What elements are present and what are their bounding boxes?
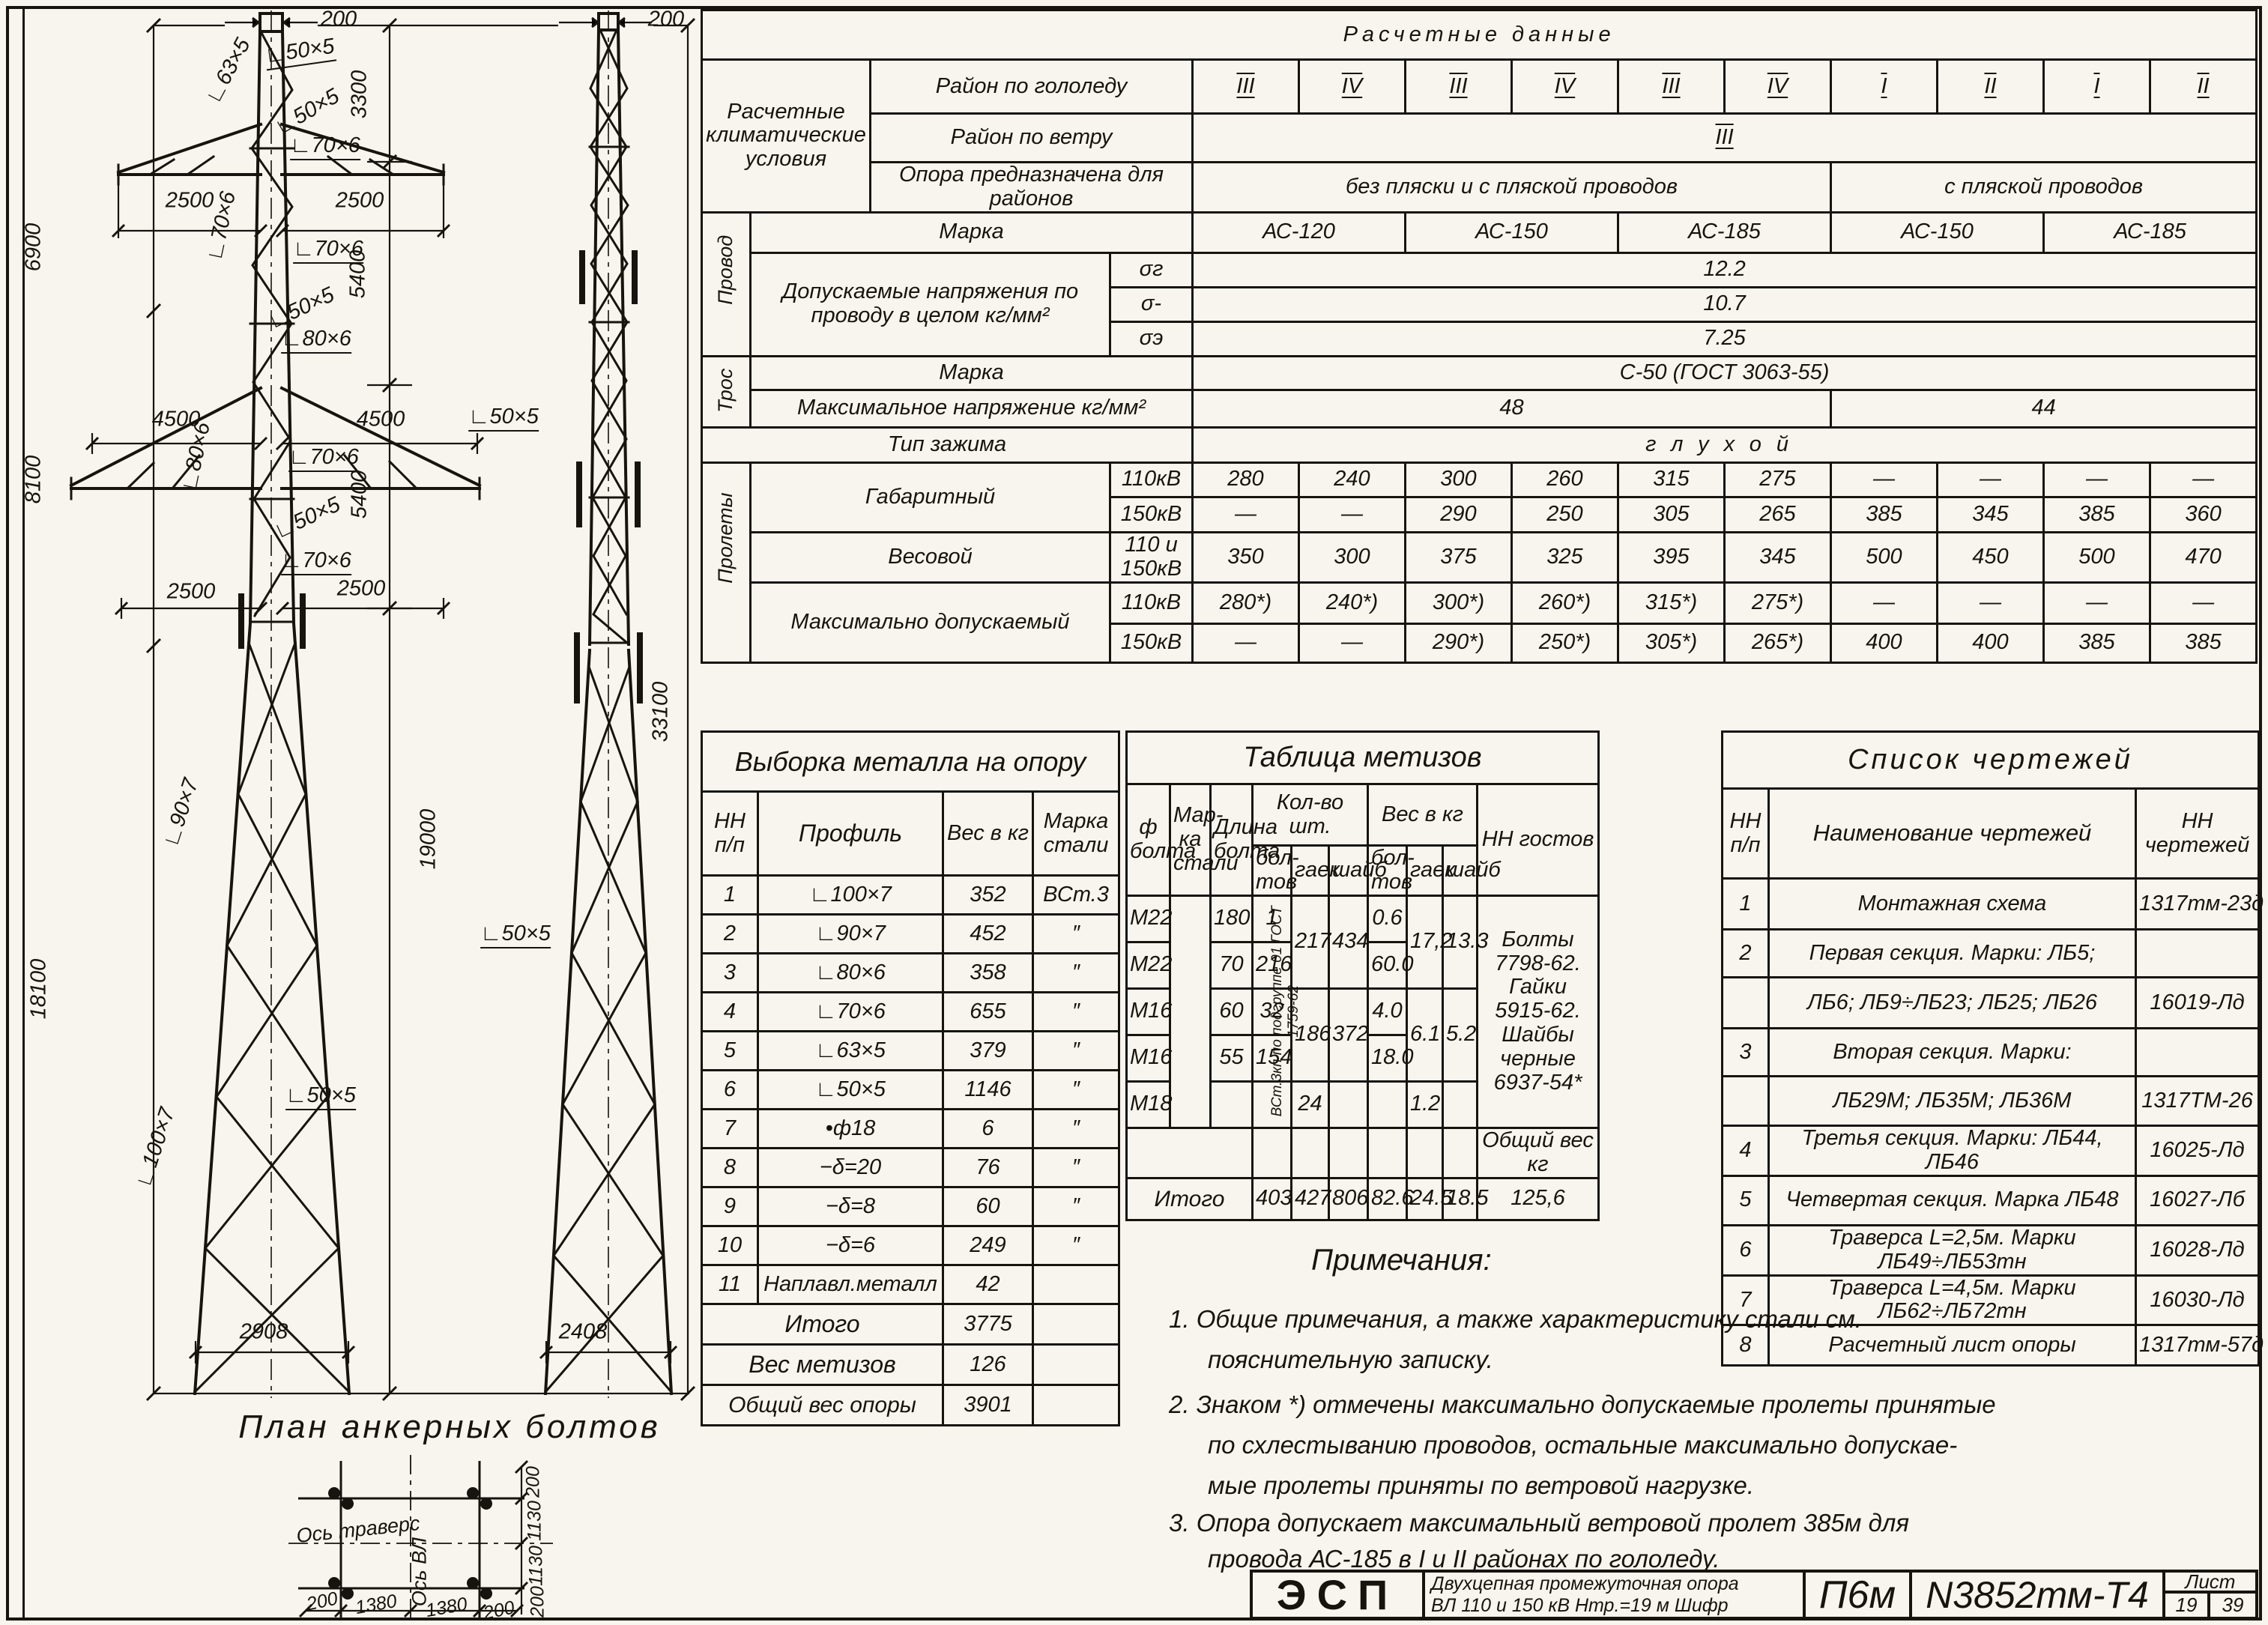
span-value: 300: [1406, 462, 1512, 497]
span-value: 375: [1406, 532, 1512, 582]
row-num: 1: [1723, 879, 1769, 930]
bolt-dia: М16: [1127, 1035, 1170, 1081]
qty-washers: 434: [1329, 895, 1368, 988]
empty-cell: [1407, 1128, 1443, 1178]
dim-arm3-left: 2500: [167, 580, 216, 605]
span-value: 300*): [1406, 582, 1512, 623]
span-value: 360: [2150, 497, 2257, 532]
row-num: 1: [702, 876, 758, 915]
empty-cell: [1329, 1128, 1368, 1178]
tower-description-line1: Двухцепная промежуточная опора: [1431, 1573, 1739, 1595]
note-line: 1. Общие примечания, а также характерист…: [1169, 1305, 1862, 1334]
span-value: 395: [1618, 532, 1725, 582]
row-num: 9: [702, 1187, 758, 1226]
gabarit-label: Габаритный: [751, 462, 1110, 532]
ice-region-value: II: [2150, 60, 2257, 114]
col-header: НН п/п: [1723, 789, 1769, 879]
sigma-label: σг: [1110, 252, 1193, 287]
steel: ВСт.3: [1033, 876, 1119, 915]
wire-marka-label: Марка: [751, 212, 1193, 252]
metal-title: Выборка металла на опору: [702, 732, 1119, 792]
col-header: Наименование чертежей: [1769, 789, 2136, 879]
wt-bolts: 18.0: [1368, 1035, 1407, 1081]
bolt-len: [1211, 1081, 1253, 1128]
steel-note: ВСт.3кп по подгруппе 01 ГОСТ 1759-62: [1170, 895, 1211, 1128]
sub-header: бол-тов: [1253, 846, 1292, 896]
col-header: Профиль: [758, 792, 943, 876]
sigma-value: 7.25: [1193, 321, 2257, 356]
sheet-margin-line: [22, 6, 25, 1621]
spans-section-label: Пролеты: [702, 462, 751, 662]
wt-bolts: 60.0: [1368, 942, 1407, 988]
total-label: Итого: [1127, 1178, 1253, 1220]
row-num: 5: [1723, 1175, 1769, 1225]
weight: 452: [943, 915, 1033, 954]
sub-header: шайб: [1443, 846, 1478, 896]
span-value: —: [1193, 497, 1299, 532]
weight: 1146: [943, 1071, 1033, 1110]
sheet-number: 19: [2162, 1591, 2210, 1620]
purpose-value-b: с пляской проводов: [1831, 163, 2257, 213]
steel: ″: [1033, 1032, 1119, 1071]
sigma-value: 12.2: [1193, 252, 2257, 287]
dim-h2: 8100: [22, 456, 46, 504]
empty-cell: [1292, 1128, 1329, 1178]
empty-cell: [1253, 1128, 1292, 1178]
span-value: 305*): [1618, 623, 1725, 662]
ice-region-value: II: [1938, 60, 2044, 114]
drawing-name: Четвертая секция. Марка ЛБ48: [1769, 1175, 2136, 1225]
wire-marka-value: АС-185: [2044, 212, 2257, 252]
member-label: ∟50×5: [480, 922, 551, 948]
steel: ″: [1033, 1110, 1119, 1149]
weight: 379: [943, 1032, 1033, 1071]
axis-vl-label: Ось ВЛ: [408, 1537, 432, 1606]
span-value: 345: [1938, 497, 2044, 532]
span-value: 385: [2044, 623, 2150, 662]
tension-value-a: 48: [1193, 390, 1831, 427]
col-header: НН чертежей: [2136, 789, 2259, 879]
span-value: 315*): [1618, 582, 1725, 623]
wt-bolts: 0.6: [1368, 895, 1407, 942]
anchor-plan-title: План анкерных болтов: [238, 1408, 660, 1446]
profile: Наплавл.металл: [758, 1265, 943, 1304]
kv-label: 110кВ: [1110, 462, 1193, 497]
ice-region-value: IV: [1725, 60, 1831, 114]
bolt-len: 70: [1211, 942, 1253, 988]
wire-marka-value: АС-120: [1193, 212, 1406, 252]
profile: −δ=8: [758, 1187, 943, 1226]
steel: ″: [1033, 915, 1119, 954]
span-value: 260*): [1512, 582, 1618, 623]
kv-label: 110кВ: [1110, 582, 1193, 623]
span-value: 500: [1831, 532, 1938, 582]
hardware-table: Таблица метизов ф болта Мар-ка стали Дли…: [1125, 730, 1600, 1221]
span-value: —: [2150, 582, 2257, 623]
bolt-len: 180: [1211, 895, 1253, 942]
plan-dim: 200: [527, 1586, 549, 1618]
title-block-description: Двухцепная промежуточная опора ВЛ 110 и …: [1422, 1570, 1806, 1620]
span-value: 500: [2044, 532, 2150, 582]
dim-v1: 3300: [348, 70, 372, 119]
bolt-len: 60: [1211, 988, 1253, 1035]
note-line: мые пролеты приняты по ветровой нагрузке…: [1208, 1471, 1754, 1500]
wind-region-value: III: [1193, 114, 2257, 163]
ice-region-value: I: [2044, 60, 2150, 114]
plan-dim: 200: [523, 1466, 545, 1498]
wt-washers: 13.3: [1443, 895, 1478, 988]
span-value: —: [1831, 582, 1938, 623]
tension-value-b: 44: [1831, 390, 2257, 427]
profile: ∟90×7: [758, 915, 943, 954]
weight: 249: [943, 1226, 1033, 1265]
kv-label: 150кВ: [1110, 497, 1193, 532]
row-num: 2: [702, 915, 758, 954]
col-header: НН п/п: [702, 792, 758, 876]
steel: ″: [1033, 1071, 1119, 1110]
span-value: 450: [1938, 532, 2044, 582]
row-num: [1723, 978, 1769, 1029]
drawing-num: [2136, 930, 2259, 978]
weight: 655: [943, 993, 1033, 1032]
row-num: 6: [702, 1071, 758, 1110]
drawing-num: 16028-Лд: [2136, 1225, 2259, 1275]
max-span-label: Максимально допускаемый: [751, 582, 1110, 662]
drawing-name: Монтажная схема: [1769, 879, 2136, 930]
span-value: 315: [1618, 462, 1725, 497]
ice-region-value: III: [1406, 60, 1512, 114]
span-value: —: [2044, 582, 2150, 623]
drawing-num: 16027-Лб: [2136, 1175, 2259, 1225]
row-num: 11: [702, 1265, 758, 1304]
kv-label: 110 и 150кВ: [1110, 532, 1193, 582]
empty-cell: [1033, 1385, 1119, 1426]
wind-region-label: Район по ветру: [871, 114, 1193, 163]
drawing-num: 1317ТМ-26: [2136, 1077, 2259, 1126]
hardware-title: Таблица метизов: [1127, 732, 1599, 784]
plan-dim: 1130: [524, 1501, 546, 1541]
drawing-num: 1317тм-23д: [2136, 879, 2259, 930]
span-value: 250*): [1512, 623, 1618, 662]
cable-marka-value: С-50 (ГОСТ 3063-55): [1193, 356, 2257, 390]
wire-marka-value: АС-150: [1831, 212, 2044, 252]
empty-cell: [1033, 1345, 1119, 1385]
stress-label: Допускаемые напряжения по проводу в цело…: [751, 252, 1110, 356]
note-line: по схлестыванию проводов, остальные макс…: [1208, 1431, 1957, 1459]
weight: 352: [943, 876, 1033, 915]
span-value: —: [1193, 623, 1299, 662]
col-header: ф болта: [1127, 784, 1170, 896]
col-header: Вес в кг: [943, 792, 1033, 876]
member-label: ∟80×6: [281, 327, 351, 354]
span-value: —: [1938, 462, 2044, 497]
wire-section-label: Провод: [702, 212, 751, 356]
drawing-name: ЛБ6; ЛБ9÷ЛБ23; ЛБ25; ЛБ26: [1769, 978, 2136, 1029]
sub-header: бол-тов: [1368, 846, 1407, 896]
profile: ∟63×5: [758, 1032, 943, 1071]
sub-header: шайб: [1329, 846, 1368, 896]
span-value: 240*): [1299, 582, 1406, 623]
span-value: —: [1299, 497, 1406, 532]
span-value: 385: [2150, 623, 2257, 662]
notes-title: Примечания:: [1311, 1244, 1492, 1277]
row-num: 3: [1723, 1029, 1769, 1077]
dim-v3: 5400: [348, 470, 372, 519]
dim-base-side: 2408: [559, 1320, 608, 1345]
dim-base-front: 2908: [240, 1320, 288, 1345]
col-header: Длина болта: [1211, 784, 1253, 896]
calc-data-table: Расчетные данные Расчетные климатические…: [701, 9, 2258, 664]
drawing-num: 16030-Лд: [2136, 1275, 2259, 1325]
ice-region-value: IV: [1512, 60, 1618, 114]
row-num: 2: [1723, 930, 1769, 978]
wt-washers: [1443, 1081, 1478, 1128]
steel: ″: [1033, 993, 1119, 1032]
profile: ∟80×6: [758, 954, 943, 993]
cable-marka-label: Марка: [751, 356, 1193, 390]
total-wt-nuts: 24.5: [1407, 1178, 1443, 1220]
span-value: —: [1299, 623, 1406, 662]
wire-marka-value: АС-185: [1618, 212, 1831, 252]
member-label: ∟50×5: [468, 405, 539, 432]
span-value: 345: [1725, 532, 1831, 582]
drawing-num: 16019-Лд: [2136, 978, 2259, 1029]
span-value: 275: [1725, 462, 1831, 497]
tower-description-line2: ВЛ 110 и 150 кВ Нтр.=19 м Шифр: [1431, 1595, 1729, 1617]
note-line: 3. Опора допускает максимальный ветровой…: [1169, 1509, 1909, 1537]
dim-arm2-right: 4500: [357, 408, 405, 432]
span-value: 260: [1512, 462, 1618, 497]
total-value: 3775: [943, 1304, 1033, 1345]
weight: 42: [943, 1265, 1033, 1304]
drawing-sheet: 200 200 6900 8100 18100 3300 5400 5400 1…: [0, 0, 2268, 1625]
span-value: 385: [2044, 497, 2150, 532]
span-value: —: [1831, 462, 1938, 497]
list-title: Список чертежей: [1723, 732, 2259, 789]
hardware-weight-value: 126: [943, 1345, 1033, 1385]
sigma-label: σ-: [1110, 287, 1193, 321]
wt-bolts: [1368, 1081, 1407, 1128]
sigma-value: 10.7: [1193, 287, 2257, 321]
wt-nuts: 1.2: [1407, 1081, 1443, 1128]
total-wt-bolts: 82.6: [1368, 1178, 1407, 1220]
span-value: 350: [1193, 532, 1299, 582]
drawing-name: Третья секция. Марки: ЛБ44, ЛБ46: [1769, 1126, 2136, 1176]
member-label: ∟70×6: [281, 548, 351, 575]
total-weight-header: Общий вес кг: [1478, 1128, 1599, 1178]
wt-washers: 5.2: [1443, 988, 1478, 1081]
empty-cell: [1368, 1128, 1407, 1178]
steel: ″: [1033, 1149, 1119, 1187]
steel: ″: [1033, 1226, 1119, 1265]
span-value: 265: [1725, 497, 1831, 532]
org-stamp: ЭСП: [1250, 1570, 1425, 1620]
note-line: 2. Знаком *) отмечены максимально допуск…: [1169, 1391, 1996, 1419]
tower-type-code: П6м: [1803, 1570, 1912, 1620]
clamp-value: глухой: [1193, 427, 2257, 462]
wt-bolts: 4.0: [1368, 988, 1407, 1035]
steel: [1033, 1265, 1119, 1304]
qty-washers: 372: [1329, 988, 1368, 1081]
member-label: ∟70×6: [290, 133, 360, 160]
row-num: 10: [702, 1226, 758, 1265]
span-value: —: [2150, 462, 2257, 497]
row-num: 6: [1723, 1225, 1769, 1275]
span-value: 280: [1193, 462, 1299, 497]
drawing-name: Первая секция. Марки: ЛБ5;: [1769, 930, 2136, 978]
profile: ∟70×6: [758, 993, 943, 1032]
member-label: ∟70×6: [288, 445, 359, 472]
note-line: пояснительную записку.: [1208, 1346, 1493, 1374]
purpose-value-a: без пляски и с пляской проводов: [1193, 163, 1831, 213]
dim-arm1-left: 2500: [166, 189, 214, 214]
bolt-dia: М22: [1127, 895, 1170, 942]
metal-table: Выборка металла на опору НН п/п Профиль …: [701, 730, 1120, 1426]
span-value: 400: [1938, 623, 2044, 662]
weight: 60: [943, 1187, 1033, 1226]
drawing-num: 1317тм-57д: [2136, 1325, 2259, 1366]
profile: ∟100×7: [758, 876, 943, 915]
member-label: ∟50×5: [285, 1083, 356, 1110]
profile: •ф18: [758, 1110, 943, 1149]
empty-cell: [1443, 1128, 1478, 1178]
calc-title: Расчетные данные: [702, 10, 2257, 60]
empty-cell: [1033, 1304, 1119, 1345]
span-value: 400: [1831, 623, 1938, 662]
steel: ″: [1033, 1187, 1119, 1226]
weight: 6: [943, 1110, 1033, 1149]
purpose-label: Опора предназначена для районов: [871, 163, 1193, 213]
total-qty-bolts: 403: [1253, 1178, 1292, 1220]
grand-weight-label: Общий вес опоры: [702, 1385, 943, 1426]
hardware-weight-label: Вес метизов: [702, 1345, 943, 1385]
dim-front-top-width: 200: [321, 7, 357, 32]
row-num: 4: [702, 993, 758, 1032]
col-header: Вес в кг: [1368, 784, 1478, 846]
total-label: Итого: [702, 1304, 943, 1345]
weight: 76: [943, 1149, 1033, 1187]
row-num: 5: [702, 1032, 758, 1071]
drawing-name: ЛБ29М; ЛБ35М; ЛБ36М: [1769, 1077, 2136, 1126]
ice-region-value: III: [1193, 60, 1299, 114]
col-header: Марка стали: [1033, 792, 1119, 876]
span-value: 240: [1299, 462, 1406, 497]
profile: −δ=20: [758, 1149, 943, 1187]
dim-vtotal: 33100: [649, 682, 674, 742]
span-value: 265*): [1725, 623, 1831, 662]
dim-side-top-width: 200: [648, 7, 684, 32]
sheet-total: 39: [2207, 1591, 2258, 1620]
climate-conditions-header: Расчетные климатические условия: [702, 60, 871, 213]
span-value: 325: [1512, 532, 1618, 582]
drawing-num: [2136, 1029, 2259, 1077]
dim-v4: 19000: [417, 809, 441, 870]
row-num: 8: [702, 1149, 758, 1187]
grand-weight-value: 3901: [943, 1385, 1033, 1426]
drawing-name: Вторая секция. Марки:: [1769, 1029, 2136, 1077]
kv-label: 150кВ: [1110, 623, 1193, 662]
drawing-number: N3852тм-Т4: [1909, 1570, 2165, 1620]
ice-region-value: I: [1831, 60, 1938, 114]
ice-region-value: IV: [1299, 60, 1406, 114]
qty-washers: [1329, 1081, 1368, 1128]
gost-note: Болты 7798-62. Гайки 5915-62. Шайбы черн…: [1478, 895, 1599, 1128]
span-value: 275*): [1725, 582, 1831, 623]
drawings-list-table: Список чертежей НН п/п Наименование черт…: [1721, 730, 2260, 1367]
total-wt-washers: 18.5: [1443, 1178, 1478, 1220]
row-num: 3: [702, 954, 758, 993]
dim-h3: 18100: [27, 959, 52, 1020]
span-value: 290*): [1406, 623, 1512, 662]
drawing-name: Траверса L=2,5м. Марки ЛБ49÷ЛБ53тн: [1769, 1225, 2136, 1275]
weight: 358: [943, 954, 1033, 993]
steel: ″: [1033, 954, 1119, 993]
span-value: —: [1938, 582, 2044, 623]
wire-marka-value: АС-150: [1406, 212, 1618, 252]
total-qty-nuts: 427: [1292, 1178, 1329, 1220]
cable-section-label: Трос: [702, 356, 751, 427]
span-value: 305: [1618, 497, 1725, 532]
total-weight-value: 125,6: [1478, 1178, 1599, 1220]
span-value: 280*): [1193, 582, 1299, 623]
sigma-label: σэ: [1110, 321, 1193, 356]
row-num: 4: [1723, 1126, 1769, 1176]
dim-h1: 6900: [22, 223, 46, 272]
profile: ∟50×5: [758, 1071, 943, 1110]
weight-span-label: Весовой: [751, 532, 1110, 582]
span-value: —: [2044, 462, 2150, 497]
row-num: [1723, 1077, 1769, 1126]
dim-arm3-right: 2500: [337, 577, 386, 602]
profile: −δ=6: [758, 1226, 943, 1265]
ice-region-label: Район по гололеду: [871, 60, 1193, 114]
total-qty-washers: 806: [1329, 1178, 1368, 1220]
drawing-num: 16025-Лд: [2136, 1126, 2259, 1176]
span-value: 250: [1512, 497, 1618, 532]
dim-arm1-right: 2500: [336, 189, 384, 214]
bolt-dia: М18: [1127, 1081, 1170, 1128]
bolt-len: 55: [1211, 1035, 1253, 1081]
bolt-dia: М22: [1127, 942, 1170, 988]
member-label: ∟70×6: [293, 237, 363, 264]
tension-label: Максимальное напряжение кг/мм²: [751, 390, 1193, 427]
clamp-label: Тип зажима: [702, 427, 1193, 462]
span-value: 385: [1831, 497, 1938, 532]
span-value: 470: [2150, 532, 2257, 582]
bolt-dia: М16: [1127, 988, 1170, 1035]
plan-dim: 1130: [526, 1546, 548, 1586]
row-num: 7: [702, 1110, 758, 1149]
span-value: 290: [1406, 497, 1512, 532]
span-value: 300: [1299, 532, 1406, 582]
empty-cell: [1127, 1128, 1253, 1178]
ice-region-value: III: [1618, 60, 1725, 114]
